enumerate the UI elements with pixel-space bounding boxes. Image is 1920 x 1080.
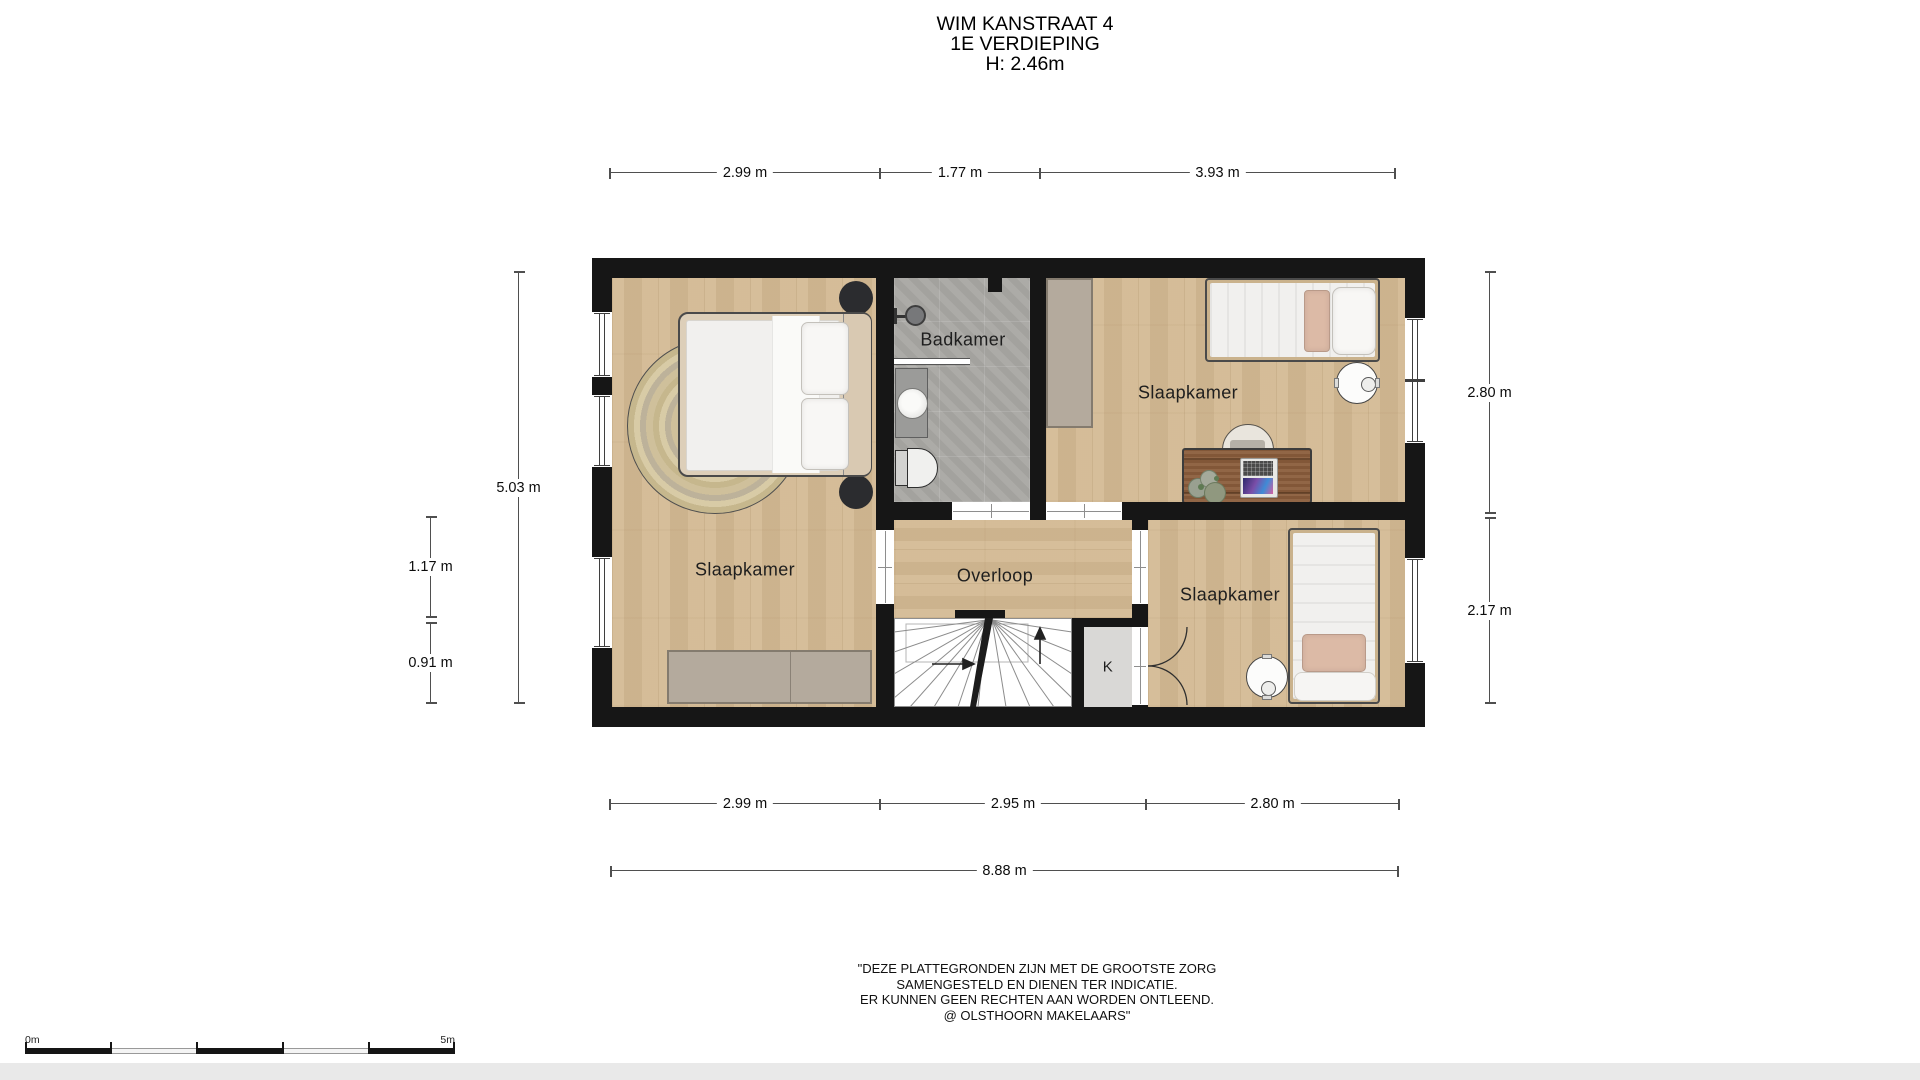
scale-tick: [196, 1042, 198, 1054]
disclaimer-line: ER KUNNEN GEEN RECHTEN AAN WORDEN ONTLEE…: [858, 992, 1217, 1008]
stairs: [894, 618, 1072, 707]
room-label-bedroom-bottom-right: Slaapkamer: [1180, 585, 1280, 606]
dim-right-2: 2.17 m: [1489, 518, 1490, 703]
window: [1405, 318, 1425, 443]
nightstand-handle: [1262, 654, 1272, 659]
door-opening-bedroom-top-right: [1046, 502, 1122, 520]
shower-head: [905, 305, 926, 326]
wall-bathroom-right: [1030, 278, 1046, 502]
window: [1405, 558, 1425, 663]
bed-pillow: [801, 322, 849, 395]
toilet-bowl: [907, 448, 938, 488]
dim-label: 3.93 m: [1189, 165, 1245, 181]
scale-tick: [282, 1042, 284, 1054]
nightstand-black-bottom: [839, 475, 873, 509]
scale-tick: [453, 1042, 455, 1054]
dim-label: 2.95 m: [985, 796, 1041, 812]
laptop-screen: [1243, 478, 1273, 494]
bed-pillow-pink: [1302, 634, 1366, 672]
dim-label: 2.99 m: [717, 165, 773, 181]
washbasin: [895, 368, 928, 438]
wardrobe-divider: [790, 652, 791, 702]
dim-label: 2.80 m: [1463, 384, 1515, 402]
scale-bar: 0m 5m: [25, 1034, 455, 1058]
laptop: [1240, 458, 1278, 498]
dim-label: 2.99 m: [717, 796, 773, 812]
dim-bottom-2: 2.95 m: [880, 803, 1146, 804]
scale-start-label: 0m: [25, 1034, 40, 1046]
plant-leaf: [1198, 484, 1204, 490]
page-title: WIM KANSTRAAT 4 1E VERDIEPING H: 2.46m: [937, 14, 1114, 74]
dim-label: 1.17 m: [404, 558, 456, 576]
window: [592, 312, 612, 377]
wardrobe-master: [667, 650, 872, 704]
dim-label: 5.03 m: [492, 479, 544, 497]
nightstand-bottom-right: [1246, 656, 1288, 698]
shower-head-icon: [894, 305, 928, 329]
dim-label: 1.77 m: [932, 165, 988, 181]
nightstand-handle: [1262, 695, 1272, 700]
dim-left-total: 5.03 m: [518, 272, 519, 703]
dim-label: 2.80 m: [1244, 796, 1300, 812]
double-bed: [678, 312, 872, 477]
scale-segment: [369, 1048, 455, 1054]
nightstand-black-top: [839, 281, 873, 315]
bottom-edge-strip: [0, 1063, 1920, 1080]
dim-top-2: 1.77 m: [880, 172, 1040, 173]
room-label-landing: Overloop: [957, 566, 1033, 587]
dim-top-3: 3.93 m: [1040, 172, 1395, 173]
bed-pillow: [801, 398, 849, 470]
bed-blanket: [1294, 672, 1376, 701]
dim-bottom-1: 2.99 m: [610, 803, 880, 804]
title-ceiling-height: H: 2.46m: [937, 54, 1114, 74]
shower-screen: [894, 358, 970, 365]
plant-bloom: [1204, 482, 1226, 504]
scale-tick: [368, 1042, 370, 1054]
room-label-closet: K: [1103, 659, 1113, 676]
floorplan-page: WIM KANSTRAAT 4 1E VERDIEPING H: 2.46m 2…: [0, 0, 1920, 1080]
wardrobe-top-right: [1046, 278, 1093, 428]
dim-label: 0.91 m: [404, 654, 456, 672]
nightstand-handle: [1334, 378, 1339, 388]
dim-left-sub-2: 0.91 m: [430, 623, 431, 703]
room-label-bedroom-master: Slaapkamer: [695, 560, 795, 581]
bed-pillow: [1332, 287, 1376, 355]
single-bed-top: [1205, 278, 1380, 362]
dim-right-1: 2.80 m: [1489, 272, 1490, 513]
floorplan: Slaapkamer Badkamer Slaapkamer Overloop …: [592, 258, 1425, 727]
nightstand-handle: [1375, 378, 1380, 388]
scale-segments: [25, 1048, 455, 1054]
window-divider: [1405, 379, 1425, 382]
wall-master-divider: [876, 278, 894, 707]
scale-segment: [25, 1048, 111, 1054]
title-floor: 1E VERDIEPING: [937, 34, 1114, 54]
room-label-bedroom-top-right: Slaapkamer: [1138, 383, 1238, 404]
scale-tick: [110, 1042, 112, 1054]
door-opening-bedroom-bottom-right: [1132, 530, 1148, 604]
door-opening-bathroom: [952, 502, 1030, 520]
window: [592, 395, 612, 467]
plant: [1188, 470, 1226, 504]
dim-label: 2.17 m: [1463, 602, 1515, 620]
nightstand-knob: [1261, 681, 1276, 696]
dim-total-width: 8.88 m: [611, 870, 1398, 871]
desk: [1182, 448, 1312, 504]
room-label-bathroom: Badkamer: [920, 330, 1005, 351]
plant-leaf: [1214, 476, 1219, 481]
nightstand-knob: [1361, 377, 1376, 392]
toilet: [895, 448, 938, 488]
window: [592, 557, 612, 648]
dim-label: 8.88 m: [976, 863, 1032, 879]
wall-closet-left: [1072, 618, 1084, 707]
scale-segment: [283, 1048, 369, 1054]
washbasin-bowl: [897, 388, 928, 419]
disclaimer: "DEZE PLATTEGRONDEN ZIJN MET DE GROOTSTE…: [858, 961, 1217, 1023]
scale-tick: [25, 1042, 27, 1054]
dim-bottom-3: 2.80 m: [1146, 803, 1399, 804]
bed-pillow-pink: [1304, 290, 1330, 352]
title-address: WIM KANSTRAAT 4: [937, 14, 1114, 34]
disclaimer-line: SAMENGESTELD EN DIENEN TER INDICATIE.: [858, 977, 1217, 993]
wall-stairs-lintel: [955, 610, 1005, 618]
nightstand-top-right: [1336, 362, 1378, 404]
dim-left-sub-1: 1.17 m: [430, 517, 431, 617]
closet-doors-swing: [1148, 627, 1188, 705]
disclaimer-line: @ OLSTHOORN MAKELAARS": [858, 1008, 1217, 1024]
scale-segment: [197, 1048, 283, 1054]
door-opening-master: [876, 530, 894, 604]
scale-segment: [111, 1048, 197, 1054]
stairs-drawing: [894, 618, 1072, 707]
laptop-keyboard: [1243, 461, 1273, 476]
wall-bathroom-niche: [988, 278, 1002, 292]
disclaimer-line: "DEZE PLATTEGRONDEN ZIJN MET DE GROOTSTE…: [858, 961, 1217, 977]
dim-top-1: 2.99 m: [610, 172, 880, 173]
single-bed-bottom: [1288, 528, 1380, 704]
door-opening-closet: [1132, 627, 1148, 705]
